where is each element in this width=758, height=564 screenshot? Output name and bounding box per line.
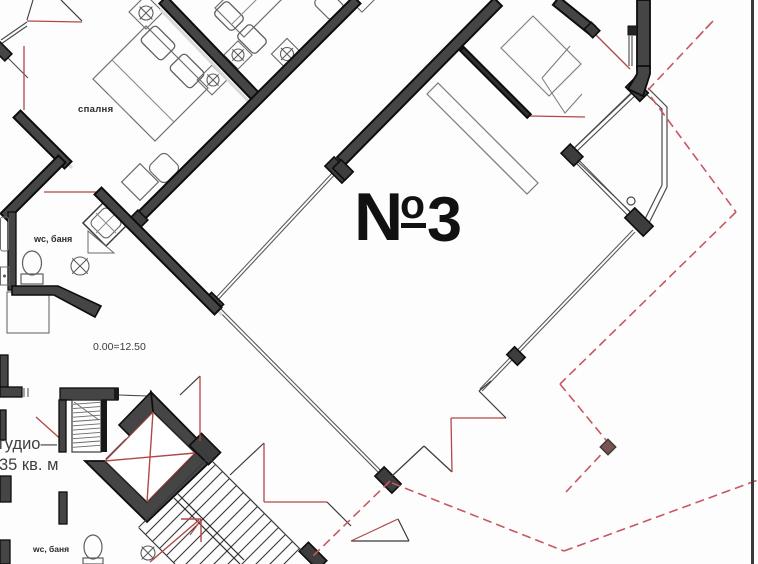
svg-text:0.00=12.50: 0.00=12.50 [93,341,146,353]
svg-text:тудио—: тудио— [0,435,57,453]
svg-text:3: 3 [427,185,462,255]
svg-text:35 кв. м: 35 кв. м [0,456,58,474]
svg-text:wc, баня: wc, баня [33,234,72,244]
svg-text:N: N [354,179,403,255]
svg-text:o: o [400,181,425,227]
svg-text:wc, баня: wc, баня [32,544,69,554]
svg-text:спалня: спалня [78,104,113,115]
